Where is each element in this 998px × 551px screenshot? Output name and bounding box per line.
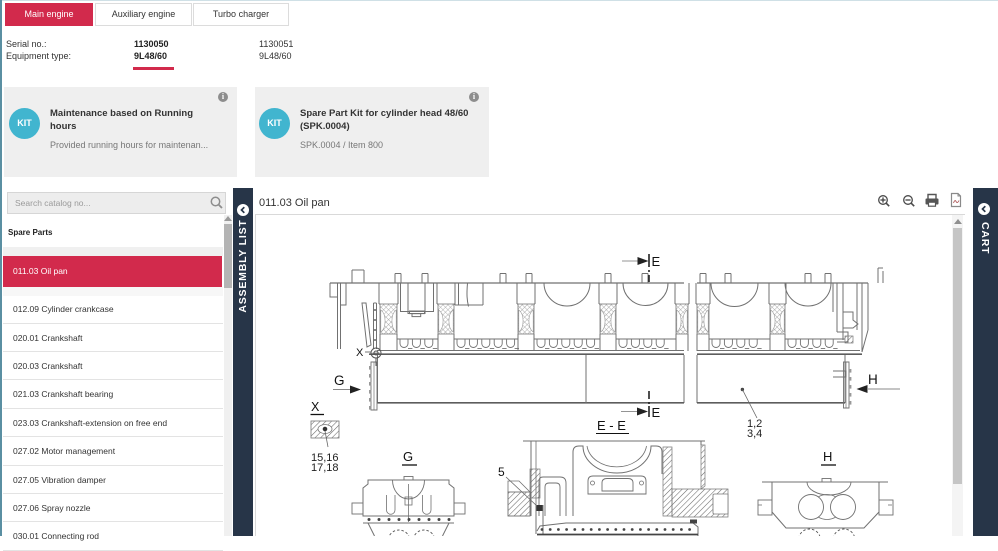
svg-text:3,4: 3,4 [747, 428, 762, 440]
svg-text:E: E [652, 254, 661, 269]
svg-text:H: H [823, 449, 832, 464]
svg-text:H: H [868, 372, 878, 387]
svg-text:E - E: E - E [597, 418, 626, 433]
svg-text:17,18: 17,18 [311, 462, 339, 474]
svg-text:G: G [403, 449, 413, 464]
svg-text:G: G [334, 373, 345, 388]
svg-text:5: 5 [498, 465, 505, 479]
svg-text:X: X [311, 400, 320, 414]
svg-text:E: E [652, 405, 661, 420]
svg-text:X: X [356, 347, 364, 359]
